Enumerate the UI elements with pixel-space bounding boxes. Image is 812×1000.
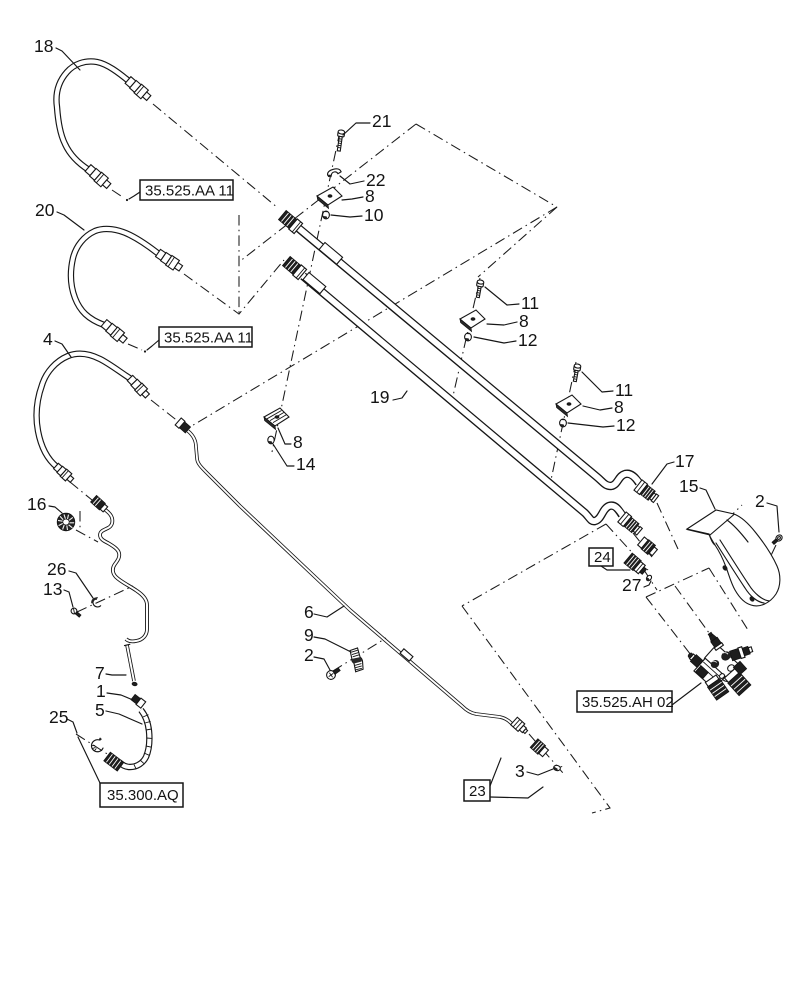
svg-text:18: 18: [34, 36, 53, 56]
svg-text:6: 6: [304, 602, 314, 622]
svg-text:8: 8: [365, 186, 375, 206]
svg-text:1: 1: [96, 681, 106, 701]
svg-text:23: 23: [469, 783, 486, 800]
svg-text:16: 16: [27, 494, 46, 514]
svg-text:14: 14: [296, 454, 316, 474]
svg-text:35.300.AQ: 35.300.AQ: [107, 787, 179, 804]
svg-text:20: 20: [35, 200, 55, 220]
svg-text:10: 10: [364, 205, 384, 225]
svg-text:8: 8: [293, 432, 303, 452]
svg-text:8: 8: [519, 311, 529, 331]
svg-text:13: 13: [43, 579, 62, 599]
svg-text:24: 24: [594, 549, 611, 566]
svg-text:35.525.AH 02: 35.525.AH 02: [582, 694, 674, 711]
svg-text:11: 11: [521, 293, 539, 313]
svg-text:21: 21: [372, 111, 391, 131]
svg-text:27: 27: [622, 575, 641, 595]
svg-text:4: 4: [43, 329, 53, 349]
svg-text:25: 25: [49, 707, 68, 727]
svg-text:8: 8: [614, 397, 624, 417]
svg-text:19: 19: [370, 387, 389, 407]
svg-text:12: 12: [616, 415, 635, 435]
svg-text:2: 2: [304, 645, 314, 665]
svg-text:15: 15: [679, 476, 698, 496]
svg-text:17: 17: [675, 451, 694, 471]
svg-text:35.525.AA 11: 35.525.AA 11: [164, 330, 253, 347]
svg-text:2: 2: [755, 491, 765, 511]
svg-text:7: 7: [95, 663, 105, 683]
svg-text:12: 12: [518, 330, 537, 350]
svg-text:26: 26: [47, 559, 66, 579]
svg-text:5: 5: [95, 700, 105, 720]
svg-text:35.525.AA 11: 35.525.AA 11: [145, 183, 234, 200]
svg-text:9: 9: [304, 625, 314, 645]
svg-text:3: 3: [515, 761, 525, 781]
